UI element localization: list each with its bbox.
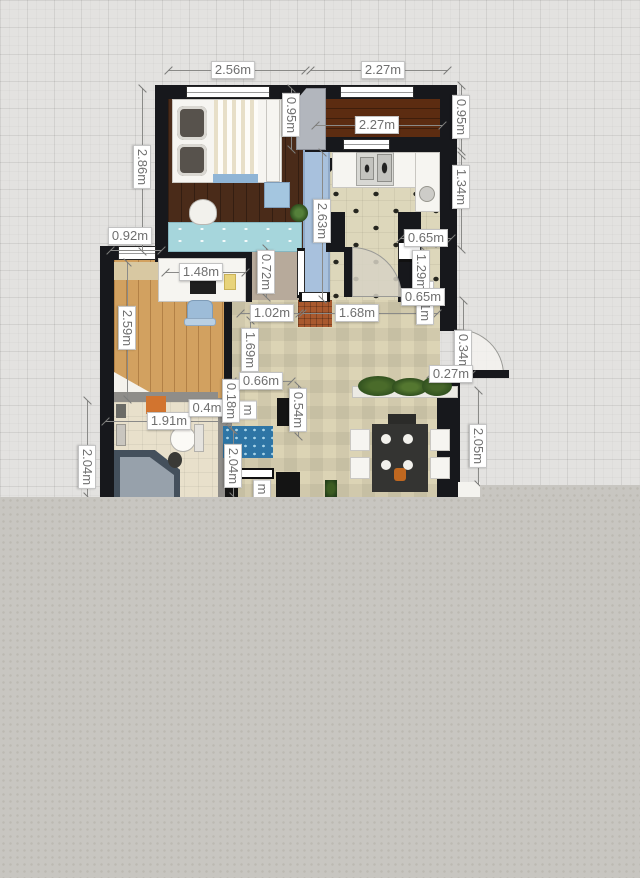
dimension-label: 2.05m	[469, 424, 487, 468]
dimension-label: 0.95m	[282, 93, 300, 137]
dimension-label: 1.02m	[250, 304, 294, 322]
dimension-label: 1.68m	[335, 304, 379, 322]
dining-chair[interactable]	[430, 429, 450, 451]
bed-striped-blanket	[214, 100, 258, 181]
office-chair-back	[184, 318, 216, 326]
floorplan-canvas[interactable]: 2.56m2.27m2.27m0.92m0.65m0.65m1.48m1.02m…	[0, 0, 640, 878]
dimension-label: 0.72m	[257, 250, 275, 294]
wall-left-upper[interactable]	[155, 85, 168, 262]
dimension-label: 0.92m	[108, 227, 152, 245]
dimension-label: 0.66m	[239, 372, 283, 390]
plate	[403, 434, 413, 444]
dimension-label: m	[239, 401, 257, 420]
dimension-label: m	[253, 480, 271, 499]
orange-dish	[394, 468, 406, 481]
wall-left-lower[interactable]	[100, 246, 114, 497]
dimension-label: 0.4m	[189, 399, 226, 417]
shower-fixture	[168, 452, 182, 468]
dimension-label: 0.95m	[452, 95, 470, 139]
vanity-desk[interactable]	[168, 222, 302, 252]
dimension-label: 2.27m	[355, 116, 399, 134]
dimension-label: 2.86m	[133, 145, 151, 189]
dimension-label: 2.63m	[313, 199, 331, 243]
dimension-line	[110, 250, 162, 251]
vanity-chair[interactable]	[189, 199, 217, 225]
potted-plant[interactable]	[290, 204, 308, 222]
small-plant	[325, 480, 337, 497]
dining-chair-top[interactable]	[388, 414, 416, 424]
dimension-label: 0.65m	[401, 288, 445, 306]
dimension-label: 0.27m	[429, 365, 473, 383]
plate	[381, 460, 391, 470]
floorplan[interactable]: 2.56m2.27m2.27m0.92m0.65m0.65m1.48m1.02m…	[0, 0, 640, 497]
hallway-door-frame-horizontal[interactable]	[299, 292, 330, 302]
canvas-blank-region-edge	[480, 485, 640, 497]
kitchen-stool[interactable]	[419, 186, 435, 202]
dining-chair[interactable]	[350, 429, 370, 451]
kitchen-counter-column[interactable]	[415, 152, 440, 212]
notepad[interactable]	[224, 274, 236, 290]
dimension-label: 2.56m	[211, 61, 255, 79]
plate	[381, 434, 391, 444]
dimension-label: 1.69m	[241, 328, 259, 372]
toilet-tank	[194, 424, 204, 452]
dimension-label: 2.27m	[361, 61, 405, 79]
pillow	[177, 106, 207, 140]
interior-door-leaf[interactable]	[344, 247, 352, 297]
sink-basin-left	[360, 157, 374, 180]
dimension-label: 1.91m	[147, 412, 191, 430]
dimension-label: 2.59m	[118, 306, 136, 350]
bathroom-fixture	[116, 404, 126, 418]
dimension-label: 2.04m	[78, 445, 96, 489]
dimension-label: 0.18m	[222, 379, 240, 423]
dimension-label: 0.65m	[404, 229, 448, 247]
media-unit[interactable]	[276, 472, 300, 497]
dining-table[interactable]	[372, 424, 428, 492]
pillow	[177, 144, 207, 176]
dining-chair[interactable]	[430, 457, 450, 479]
bed-footboard	[266, 99, 280, 182]
window-kitchen[interactable]	[343, 139, 390, 150]
window-balcony[interactable]	[340, 86, 414, 98]
wardrobe[interactable]	[296, 88, 326, 150]
bedroom-bench[interactable]	[264, 182, 290, 208]
canvas-blank-region	[0, 497, 640, 878]
dimension-label: 1.34m	[452, 165, 470, 209]
bed-blue-runner	[213, 174, 258, 183]
hallway-door-frame-vertical[interactable]	[297, 248, 305, 298]
bathroom-cabinet[interactable]	[116, 424, 126, 446]
dimension-label: 1.48m	[179, 263, 223, 281]
sink-basin-right	[377, 154, 392, 182]
window-bedroom[interactable]	[186, 86, 270, 98]
office-shelf[interactable]	[114, 262, 158, 280]
dining-chair[interactable]	[350, 457, 370, 479]
dimension-label: 2.04m	[224, 444, 242, 488]
dimension-label: 0.54m	[289, 388, 307, 432]
